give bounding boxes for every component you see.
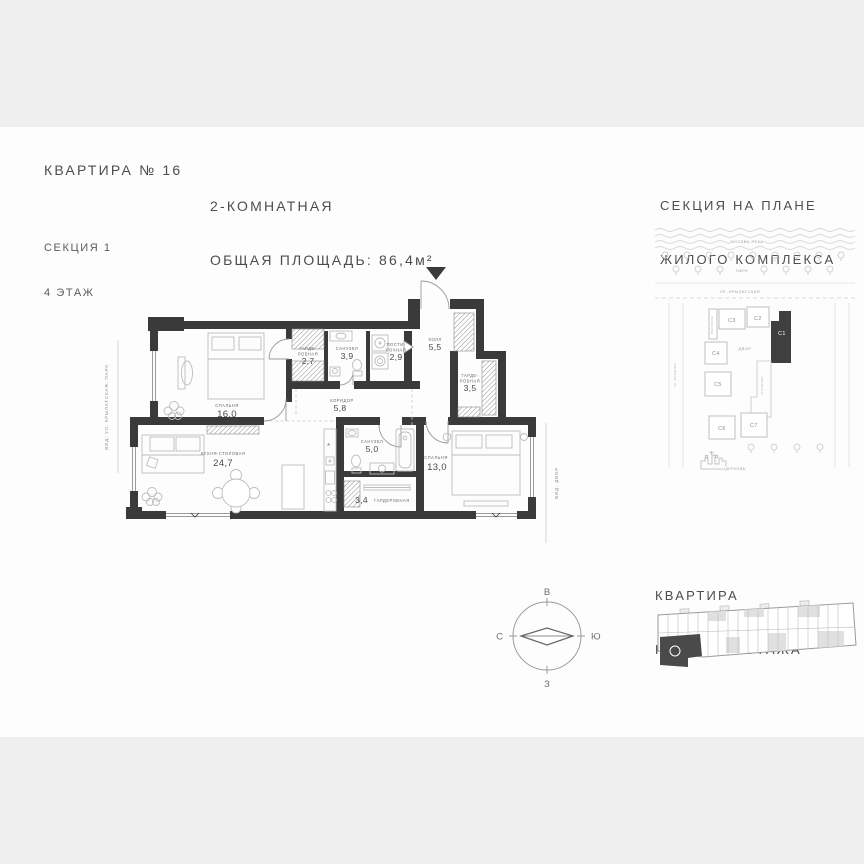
- room-label-hall: ХОЛЛ 5,5: [428, 337, 441, 352]
- dining-table: [222, 479, 250, 507]
- site-buildings: РЕСТОРАН С3 С2 С1 С4 С5 ДВОР СТИЛОБАТ С6…: [705, 307, 791, 439]
- courtyard-label: ДВОР: [739, 346, 752, 351]
- room-label-bathroom-1: САНУЗЕЛ 3,9: [336, 346, 359, 361]
- building-c3-label: С3: [728, 318, 736, 324]
- entrance-arrow-icon: [426, 267, 446, 280]
- view-right-label: ВИД: ДВОР: [554, 467, 559, 499]
- building-c6-label: С6: [718, 426, 726, 432]
- floor-plate: [648, 593, 860, 683]
- stylobate-label: СТИЛОБАТ: [760, 376, 764, 394]
- building-c1-label: С1: [778, 331, 786, 337]
- bathroom-2-fixtures: [346, 429, 414, 474]
- church: [701, 451, 726, 469]
- svg-text:3,9: 3,9: [341, 351, 354, 361]
- svg-text:ПОСТИ-: ПОСТИ-: [387, 342, 406, 347]
- compass-needle: [521, 628, 573, 645]
- building-c5-label: С5: [714, 382, 722, 388]
- view-left-label: ВИД: УЛ. КРЫЛАТСКАЯ. ПАРК: [104, 364, 109, 450]
- svg-text:3,5: 3,5: [464, 383, 477, 393]
- room-label-laundry: ПОСТИ- РОЧНАЯ 2,9: [386, 342, 406, 362]
- bedroom-2-furniture: [443, 431, 527, 506]
- compass-north-label: С: [496, 632, 503, 643]
- building-c1-highlighted: [771, 311, 791, 363]
- room-label-wardrobe-3: 3,4 ГАРДЕРОБНАЯ: [355, 495, 410, 505]
- room-label-bathroom-2: САНУЗЕЛ 5,0: [361, 439, 384, 454]
- page: КВАРТИРА № 16 СЕКЦИЯ 1 4 ЭТАЖ 2-КОМНАТНА…: [0, 0, 864, 864]
- building-c4-label: С4: [712, 351, 720, 357]
- park-trees: [662, 252, 844, 275]
- street-left-label: УЛ. ОСЕННЯЯ: [673, 363, 677, 387]
- svg-text:ГАРДЕРОБНАЯ: ГАРДЕРОБНАЯ: [374, 498, 409, 503]
- building-c7-label: С7: [750, 423, 758, 429]
- room-label-wardrobe-2: ГАРДЕ- РОБНАЯ 3,5: [460, 373, 480, 393]
- plant: [142, 488, 162, 506]
- street-top-label: УЛ. КРЫЛАТСКАЯ: [720, 289, 760, 294]
- room-label-bedroom-1: СПАЛЬНЯ 16,0: [215, 403, 239, 420]
- svg-text:13,0: 13,0: [427, 462, 447, 473]
- kitchen-furniture: *: [142, 429, 336, 513]
- svg-text:5,0: 5,0: [366, 444, 379, 454]
- church-trees: [748, 444, 823, 453]
- room-label-corridor: КОРИДОР 5,8: [330, 398, 354, 413]
- svg-text:СПАЛЬНЯ: СПАЛЬНЯ: [424, 455, 448, 460]
- svg-text:ГАРДЕ-: ГАРДЕ-: [299, 346, 316, 351]
- svg-text:КУХНЯ-СТОЛОВАЯ: КУХНЯ-СТОЛОВАЯ: [201, 451, 246, 456]
- church-label: ЦЕРКОВЬ: [724, 466, 746, 471]
- kitchen-island: [282, 465, 304, 509]
- svg-text:ГАРДЕ-: ГАРДЕ-: [461, 373, 478, 378]
- svg-text:3,4: 3,4: [355, 495, 368, 505]
- rooms-count-label: 2-КОМНАТНАЯ: [210, 197, 434, 215]
- restaurant-label: РЕСТОРАН: [710, 316, 714, 334]
- site-plan-title-line1: СЕКЦИЯ НА ПЛАНЕ: [660, 197, 835, 215]
- svg-text:СПАЛЬНЯ: СПАЛЬНЯ: [215, 403, 239, 408]
- svg-text:2,9: 2,9: [390, 352, 403, 362]
- svg-text:24,7: 24,7: [213, 458, 233, 469]
- river-waves: МОСКВА РЕКА: [655, 229, 855, 250]
- plant: [164, 402, 184, 420]
- building-c2-label: С2: [754, 316, 762, 322]
- section-label: СЕКЦИЯ 1: [44, 241, 112, 256]
- room-label-bedroom-2: СПАЛЬНЯ 13,0: [424, 455, 448, 473]
- svg-text:16,0: 16,0: [217, 409, 237, 420]
- svg-text:5,5: 5,5: [429, 342, 442, 352]
- compass-south-label: Ю: [591, 632, 601, 643]
- wardrobe-3-shelf: [364, 485, 410, 490]
- content-card: КВАРТИРА № 16 СЕКЦИЯ 1 4 ЭТАЖ 2-КОМНАТНА…: [0, 127, 864, 737]
- bedroom-1-furniture: [164, 333, 264, 420]
- kitchen-counter: *: [324, 429, 336, 511]
- room-label-kitchen: КУХНЯ-СТОЛОВАЯ 24,7: [201, 451, 246, 469]
- compass-west-label: З: [544, 679, 550, 690]
- svg-text:5,8: 5,8: [334, 403, 347, 413]
- compass-east-label: В: [544, 587, 550, 598]
- park-label: ПАРК: [736, 268, 748, 273]
- site-plan: МОСКВА РЕКА: [655, 225, 855, 475]
- apartment-title: КВАРТИРА № 16: [44, 161, 182, 179]
- svg-text:*: *: [327, 442, 330, 451]
- compass: В Ю З С: [492, 586, 602, 691]
- svg-text:2,7: 2,7: [302, 356, 315, 366]
- floor-plan: *: [90, 255, 570, 555]
- highlighted-apartment: [660, 634, 702, 667]
- river-label: МОСКВА РЕКА: [730, 239, 763, 244]
